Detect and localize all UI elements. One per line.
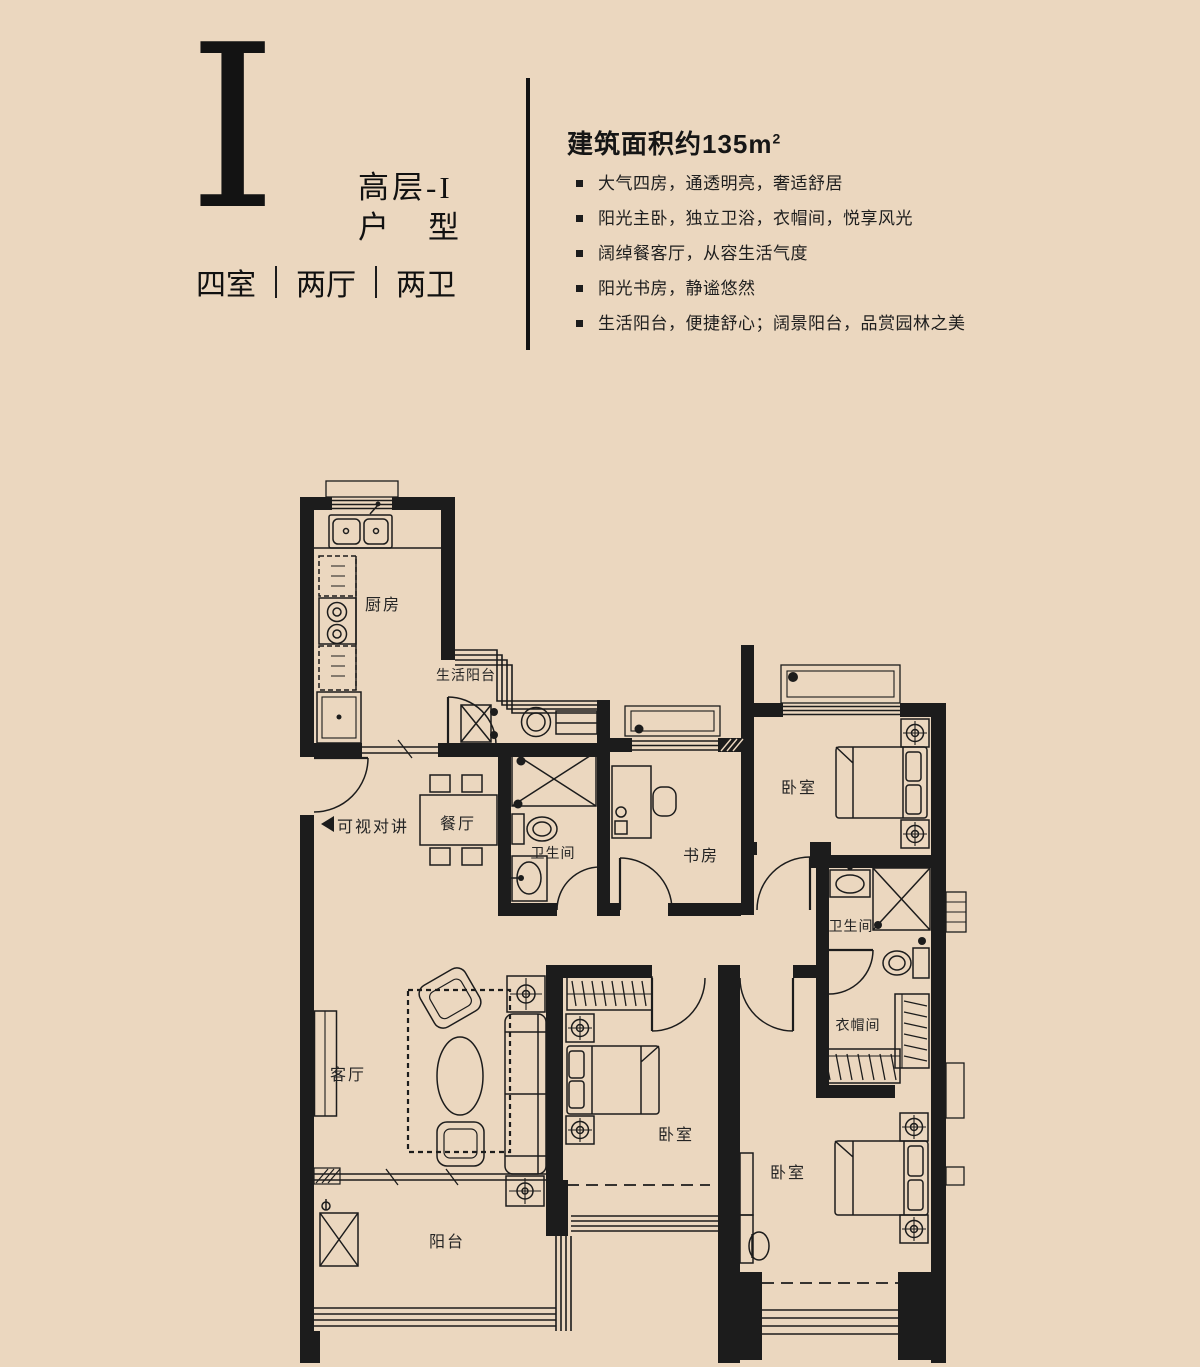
- dresser: [740, 1153, 753, 1215]
- nightstand: [900, 1215, 928, 1243]
- chair: [749, 1232, 769, 1260]
- rooms-item-3: 两卫: [396, 260, 456, 304]
- toilet: [883, 937, 929, 978]
- appliance-box: [319, 646, 356, 690]
- kitchen-fridge: [317, 692, 361, 743]
- rooms-item-2: 两厅: [296, 260, 356, 304]
- bullet-square-icon: [576, 215, 583, 222]
- washing-machine: [522, 708, 598, 737]
- room-label-bath2: 卫生间: [829, 919, 874, 935]
- closet-horizontal: [819, 1049, 900, 1083]
- armchair: [437, 1122, 484, 1166]
- feature-text: 阳光主卧，独立卫浴，衣帽间，悦享风光: [598, 208, 913, 229]
- room-label-bath1: 卫生间: [531, 846, 576, 862]
- area-title-text: 建筑面积约135m: [567, 129, 773, 159]
- study-fixtures: [612, 766, 676, 838]
- floor-plan: 厨房 生活阳台 餐厅 卫生间 书房 卧室 卫生间 衣帽间 卧室 卧室 客厅 阳台…: [280, 470, 980, 1367]
- shower: [512, 752, 596, 809]
- room-label-bedroom-top: 卧室: [781, 779, 817, 797]
- bedroom-mid-door: [652, 978, 705, 1031]
- room-label-study: 书房: [683, 847, 719, 865]
- rooms-summary: 四室 两厅 两卫: [196, 260, 456, 304]
- nightstand: [901, 820, 929, 848]
- feature-item: 大气四房，通透明亮，奢适舒居: [574, 173, 966, 194]
- bullet-square-icon: [576, 320, 583, 327]
- armchair: [415, 964, 484, 1032]
- area-title-sup: 2: [773, 130, 782, 146]
- bed: [836, 747, 927, 818]
- bath2-door: [829, 950, 873, 994]
- nightstand: [900, 1113, 928, 1141]
- mop-sink: [461, 705, 498, 742]
- washbasin: [830, 864, 870, 897]
- side-table: [507, 976, 545, 1012]
- unit-type-label: 户 型: [358, 202, 463, 247]
- master-suite-door: [740, 978, 793, 1031]
- nightstand: [901, 719, 929, 747]
- windows: [314, 481, 966, 1334]
- nightstand: [566, 1116, 594, 1144]
- bedroom-mid-furniture: [566, 977, 659, 1144]
- bullet-square-icon: [576, 180, 583, 187]
- living-room-furniture: [315, 964, 547, 1206]
- dining-chair: [462, 775, 482, 792]
- bed: [567, 1046, 659, 1114]
- area-title: 建筑面积约135m2: [567, 124, 781, 161]
- page: I 高层-I 户 型 四室 两厅 两卫 建筑面积约135m2 大气四房，通透明亮…: [0, 0, 1200, 1367]
- sofa: [505, 1014, 546, 1174]
- bedroom-top-door: [757, 857, 810, 910]
- entry-door: [314, 758, 368, 812]
- kitchen-stove: [319, 598, 356, 644]
- room-label-bedroom-master: 卧室: [770, 1164, 806, 1182]
- toilet: [512, 814, 557, 844]
- header-divider: [526, 78, 530, 350]
- rooms-separator: [275, 266, 277, 298]
- bed: [835, 1141, 928, 1215]
- room-label-cloakroom: 衣帽间: [836, 1018, 881, 1034]
- tv-cabinet: [315, 1011, 337, 1116]
- bullet-square-icon: [576, 250, 583, 257]
- bedroom-top-furniture: [836, 719, 929, 848]
- kitchen-service-door: [448, 697, 496, 745]
- shower: [873, 868, 930, 930]
- bedroom-master-furniture: [740, 1113, 928, 1263]
- feature-text: 生活阳台，便捷舒心；阔景阳台，品赏园林之美: [598, 313, 966, 334]
- logo-letter: I: [188, 24, 277, 234]
- dining-chair: [462, 848, 482, 865]
- dining-chair: [430, 848, 450, 865]
- bullet-square-icon: [576, 285, 583, 292]
- desk: [612, 766, 651, 838]
- unit-type-name: 高层-I: [358, 162, 453, 207]
- bath1-fixtures: [508, 752, 596, 901]
- study-door: [620, 858, 672, 910]
- bath1-door: [557, 867, 600, 910]
- rug: [408, 990, 510, 1152]
- cloakroom-fixtures: [819, 994, 929, 1083]
- balcony-fixtures: [320, 1199, 358, 1266]
- room-label-kitchen: 厨房: [365, 596, 401, 614]
- rooms-separator: [375, 266, 377, 298]
- room-label-dining: 餐厅: [440, 815, 476, 833]
- feature-text: 阔绰餐客厅，从容生活气度: [598, 243, 808, 264]
- feature-item: 阔绰餐客厅，从容生活气度: [574, 243, 966, 264]
- rooms-item-1: 四室: [196, 260, 256, 304]
- room-label-living: 客厅: [330, 1066, 366, 1084]
- intercom-icon: [321, 816, 334, 832]
- feature-text: 大气四房，通透明亮，奢适舒居: [598, 173, 843, 194]
- kitchen-counter: [314, 548, 441, 690]
- room-label-bedroom-mid: 卧室: [658, 1126, 694, 1144]
- kitchen-fixtures: [314, 502, 441, 744]
- desk-chair: [653, 787, 676, 816]
- feature-item: 阳光书房，静谧悠然: [574, 278, 966, 299]
- dining-chair: [430, 775, 450, 792]
- intercom-label: 可视对讲: [337, 818, 409, 836]
- wardrobe: [567, 977, 652, 1010]
- feature-text: 阳光书房，静谧悠然: [598, 278, 756, 299]
- feature-item: 生活阳台，便捷舒心；阔景阳台，品赏园林之美: [574, 313, 966, 334]
- feature-item: 阳光主卧，独立卫浴，衣帽间，悦享风光: [574, 208, 966, 229]
- room-label-service-balcony: 生活阳台: [436, 668, 496, 684]
- balcony-sink: [320, 1199, 358, 1266]
- nightstand: [566, 1014, 594, 1042]
- room-label-balcony: 阳台: [429, 1233, 465, 1251]
- feature-list: 大气四房，通透明亮，奢适舒居 阳光主卧，独立卫浴，衣帽间，悦享风光 阔绰餐客厅，…: [574, 173, 966, 334]
- coffee-table: [437, 1037, 483, 1115]
- washbasin: [508, 856, 547, 901]
